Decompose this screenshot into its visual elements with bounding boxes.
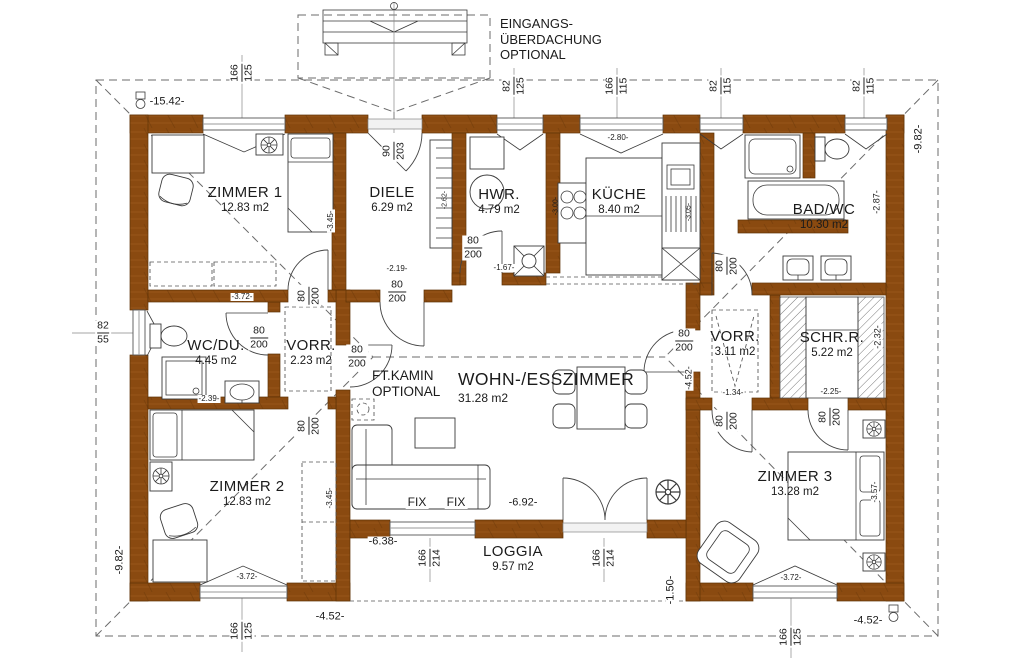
dim-label: -1.50-	[666, 575, 677, 606]
dim-label: -15.42-	[149, 97, 186, 108]
canopy-note: EINGANGS- ÜBERDACHUNG OPTIONAL	[500, 16, 602, 63]
zimmer1-furniture	[152, 134, 333, 232]
floor-plan: ZIMMER 1 12.83 m2 DIELE 6.29 m2 HWR. 4.7…	[0, 0, 1024, 660]
dim-label: -2.32-	[874, 324, 883, 350]
dim-label: -1.34-	[722, 389, 745, 397]
room-label-vorraum-ost: VORR. 3.11 m2	[710, 328, 760, 358]
room-label-loggia: LOGGIA 9.57 m2	[483, 543, 543, 573]
dim-label: -4.52-	[315, 612, 346, 623]
dim-entrance-door-size: 90203	[381, 140, 406, 162]
dim-label: -2.39-	[198, 395, 221, 403]
dim-door-size: 80200	[462, 235, 484, 260]
dim-label: -3.72-	[231, 293, 254, 301]
fix-glazing	[390, 522, 475, 535]
fix-label-right: FIX	[445, 495, 468, 509]
dim-door-size: 80200	[386, 279, 408, 304]
dim-window-size: 166214	[591, 547, 616, 569]
dim-door-size: 80200	[673, 328, 695, 353]
dim-door-size: 80200	[714, 255, 739, 277]
room-label-vorraum-west: VORR. 2.23 m2	[286, 337, 336, 367]
dim-window-size: 82115	[708, 76, 733, 97]
dim-window-size: 166214	[417, 547, 442, 569]
entrance-canopy	[323, 2, 467, 133]
dim-label: -1.67-	[493, 264, 516, 272]
room-label-hwr: HWR. 4.79 m2	[478, 186, 520, 216]
room-label-schrankraum: SCHR.R. 5.22 m2	[800, 329, 864, 359]
dim-door-size: 80200	[714, 410, 739, 432]
dim-window-size: 166125	[229, 62, 254, 84]
dim-label: -3.45-	[326, 487, 334, 510]
room-label-zimmer1: ZIMMER 1 12.83 m2	[208, 184, 283, 214]
dim-label: -6.92-	[508, 498, 539, 509]
dim-window-size: 82125	[501, 75, 526, 97]
room-label-wohnzimmer: WOHN-/ESSZIMMER 31.28 m2	[458, 369, 634, 405]
dim-label: -3.72-	[780, 574, 803, 582]
dim-label: -2.87-	[873, 189, 882, 215]
dim-window-size: 166125	[229, 620, 254, 642]
fix-label-left: FIX	[406, 495, 429, 509]
dim-label: -4.52-	[853, 616, 884, 627]
dim-door-size: 80200	[296, 415, 321, 437]
dim-label: -3.57-	[871, 481, 879, 504]
dim-door-size: 80200	[296, 285, 321, 307]
dim-label: -9.82-	[115, 545, 126, 576]
dim-door-size: 80200	[346, 344, 368, 369]
dim-label: -2.25-	[820, 388, 843, 396]
dim-label: -3.00-	[553, 196, 560, 216]
dim-label: -3.05-	[686, 202, 693, 222]
room-label-zimmer2: ZIMMER 2 12.83 m2	[210, 478, 285, 508]
dim-window-size: 166125	[778, 626, 803, 648]
dim-label: -2.62-	[442, 190, 449, 210]
dim-window-size: 82115	[851, 76, 876, 97]
dim-label: -6.38-	[368, 537, 399, 548]
dim-label: -3.45-	[327, 210, 335, 233]
room-label-kueche: KÜCHE 8.40 m2	[592, 186, 647, 216]
room-label-zimmer3: ZIMMER 3 13.28 m2	[758, 468, 833, 498]
dim-label: -2.19-	[386, 265, 409, 273]
room-label-bad-wc: BAD/WC 10.30 m2	[793, 201, 855, 231]
dim-label: -4.52-	[685, 365, 694, 391]
room-label-wc-du: WC/DU. 4.45 m2	[187, 337, 244, 367]
dim-window-size: 8255	[95, 320, 111, 345]
dim-window-size: 166115	[604, 75, 629, 97]
room-label-diele: DIELE 6.29 m2	[369, 184, 414, 214]
dim-door-size: 80200	[248, 325, 270, 350]
dim-label: -3.72-	[236, 573, 259, 581]
zimmer3-furniture	[693, 420, 885, 587]
dim-label: -2.80-	[607, 134, 630, 142]
dim-label: -9.82-	[914, 124, 925, 155]
dim-door-size: 80200	[817, 406, 842, 428]
kamin-note: FT.KAMIN OPTIONAL	[372, 368, 440, 400]
